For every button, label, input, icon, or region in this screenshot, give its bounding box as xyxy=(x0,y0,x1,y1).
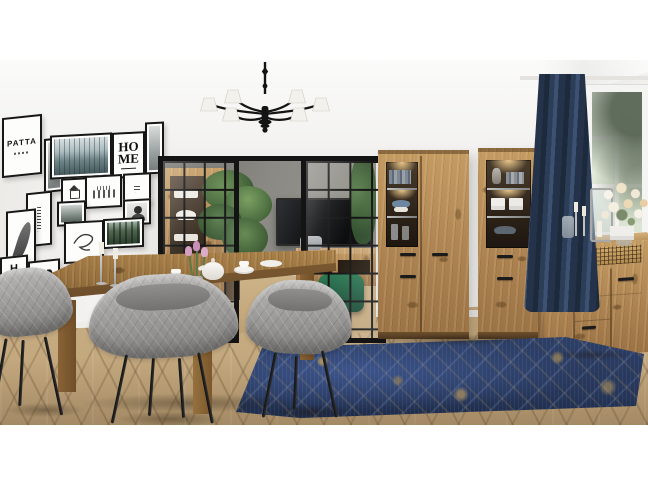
book-spines xyxy=(389,170,411,184)
dining-chair xyxy=(246,280,356,420)
picture-frame: HO ME xyxy=(112,131,145,179)
misty-forest-photo xyxy=(54,137,108,176)
white-box xyxy=(509,198,523,210)
chair-leg xyxy=(18,340,24,406)
tulip-bloom xyxy=(193,241,200,251)
tulip-bloom xyxy=(185,246,192,256)
white-dish xyxy=(394,207,408,212)
home-poster: HO ME xyxy=(116,135,141,174)
home-rule xyxy=(121,168,136,170)
dining-chair xyxy=(0,268,76,418)
chair-leg xyxy=(0,338,8,415)
glass-bottles xyxy=(562,216,574,238)
sideboard-divider xyxy=(610,269,612,353)
chandelier xyxy=(185,62,345,140)
glassware xyxy=(402,226,409,240)
cabinet-cornice xyxy=(478,148,539,152)
screenshot: PATTA HOME HO ME xyxy=(0,0,648,486)
interior-photo: PATTA HOME HO ME xyxy=(0,60,648,425)
candle xyxy=(99,242,104,254)
chair-leg xyxy=(44,337,64,416)
candlestick xyxy=(583,214,585,236)
cabinet-floor-shadow xyxy=(374,332,546,348)
door-seam xyxy=(420,156,422,336)
candle xyxy=(574,202,578,212)
candle xyxy=(113,248,118,259)
house-sketch xyxy=(65,182,83,200)
glass-display-section xyxy=(386,162,418,247)
chair-shell xyxy=(0,263,75,340)
dark-bowl xyxy=(494,226,516,234)
picture-frame xyxy=(50,132,112,179)
city-lines xyxy=(93,189,117,198)
picture-frame xyxy=(103,217,144,249)
candlestick xyxy=(575,210,577,236)
text-block-lines xyxy=(134,186,140,192)
city-lines xyxy=(97,186,111,191)
chair-leg xyxy=(293,356,298,410)
cabinet-led-glow xyxy=(388,190,416,200)
chair-leg xyxy=(197,352,214,423)
candle xyxy=(582,206,586,216)
drawer-seam xyxy=(575,319,610,322)
runes-subtitle-lines xyxy=(14,151,30,155)
house-body xyxy=(70,190,80,200)
chair-leg xyxy=(111,354,128,423)
cabinet-cornice xyxy=(378,150,469,154)
chair-leg xyxy=(178,358,185,418)
text-poster-lines xyxy=(37,207,41,231)
display-cabinet-wide xyxy=(378,150,469,339)
forest-road-photo xyxy=(61,204,82,222)
blue-bowl xyxy=(392,200,410,207)
book-spines xyxy=(506,172,524,184)
portrait-head xyxy=(134,206,142,214)
flower-bouquet xyxy=(598,178,648,234)
chair-leg xyxy=(321,350,338,417)
home-line2: ME xyxy=(116,153,141,167)
dining-chair xyxy=(88,274,242,424)
glass-display-section xyxy=(486,160,531,248)
picture-frame: PATTA xyxy=(2,114,42,178)
white-box xyxy=(491,198,505,210)
gray-vase xyxy=(492,168,501,184)
teapot-lid xyxy=(211,258,215,263)
chair-leg xyxy=(148,358,155,416)
house-roof xyxy=(69,185,79,191)
forest-car-photo xyxy=(107,221,140,245)
doorway-header xyxy=(229,156,301,161)
glassware xyxy=(391,224,398,240)
runes-text: PATTA xyxy=(6,136,38,148)
sideboard-shadow xyxy=(536,348,648,362)
picture-frame xyxy=(85,174,122,209)
city-sketch xyxy=(89,178,118,205)
runes-artwork: PATTA xyxy=(6,118,38,173)
chair-leg xyxy=(262,352,278,417)
plate-stack xyxy=(260,260,282,267)
